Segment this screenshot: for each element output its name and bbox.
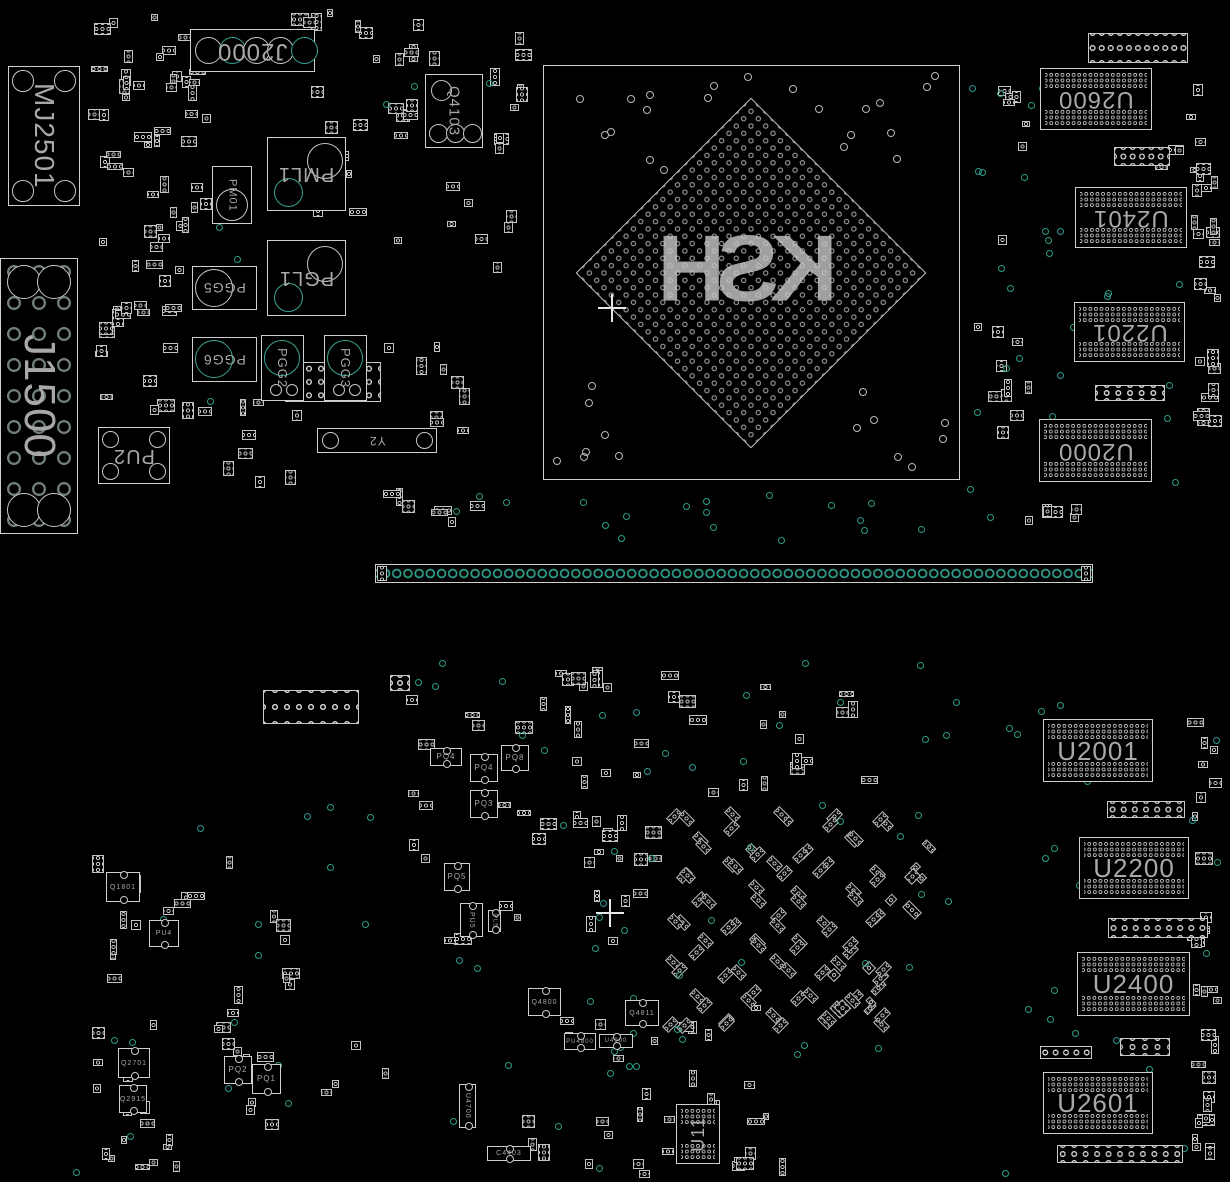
pin-circle <box>291 37 318 64</box>
component-label: PQ2 <box>228 1066 247 1074</box>
decorative-pad <box>131 920 141 930</box>
decorative-pad <box>123 168 134 177</box>
decorative-pad <box>504 222 513 233</box>
decorative-pad <box>158 234 170 243</box>
component-label: PQ4 <box>436 753 455 761</box>
pin-header <box>1057 1145 1183 1163</box>
component-label: U2601 <box>1057 1090 1139 1116</box>
component-pgg6[interactable]: PGG6 <box>192 337 257 382</box>
via <box>859 388 867 396</box>
component-label: PU2 <box>113 446 155 466</box>
decorative-pad <box>404 48 419 57</box>
via <box>1014 731 1021 738</box>
component-label: PGL1 <box>279 268 334 288</box>
via <box>127 1133 134 1140</box>
decorative-pad <box>223 461 234 476</box>
gpu-bga[interactable]: KSH <box>543 65 960 480</box>
decorative-pad <box>540 818 557 830</box>
component-u4900[interactable]: U4900 <box>599 1034 633 1048</box>
decorative-pad <box>1195 1118 1203 1128</box>
via <box>967 486 974 493</box>
decorative-pad <box>1195 852 1213 865</box>
component-label: C4403 <box>496 1150 522 1157</box>
decorative-pad <box>766 855 783 872</box>
via <box>643 106 651 114</box>
via <box>207 398 214 405</box>
via <box>941 419 949 427</box>
decorative-pad <box>137 309 150 316</box>
pin-circle <box>235 1055 243 1063</box>
via <box>111 1037 118 1044</box>
decorative-pad <box>429 51 440 66</box>
component-label: PGG5 <box>203 281 246 295</box>
via <box>683 503 690 510</box>
pin-circle <box>465 1122 473 1130</box>
via <box>738 959 745 966</box>
pin-header <box>1108 918 1208 938</box>
component-mj2501[interactable]: MJ2501 <box>8 66 80 206</box>
via <box>922 736 929 743</box>
decorative-pad <box>359 27 373 39</box>
component-u2000[interactable]: U2000 <box>1039 419 1152 482</box>
component-label: PQ8 <box>505 754 524 762</box>
component-label: Q2701 <box>121 1060 147 1067</box>
component-label: U2201 <box>1092 320 1168 344</box>
decorative-pad <box>122 94 130 101</box>
decorative-pad <box>409 839 419 851</box>
component-label: Q4103 <box>447 86 462 136</box>
decorative-pad <box>637 1107 643 1122</box>
decorative-pad <box>590 672 599 688</box>
component-label: PGG3 <box>339 348 352 388</box>
decorative-pad <box>581 775 588 789</box>
decorative-pad <box>154 135 160 147</box>
via <box>1189 817 1196 824</box>
pin-circle <box>454 885 462 893</box>
decorative-pad <box>383 490 401 498</box>
decorative-pad <box>124 50 133 63</box>
decorative-pad <box>723 820 740 837</box>
pin-circle <box>577 1044 585 1052</box>
component-u4700[interactable]: U4700 <box>459 1084 476 1128</box>
component-pq1[interactable]: PQ1 <box>252 1064 281 1094</box>
decorative-pad <box>265 1119 279 1130</box>
decorative-pad <box>240 399 246 416</box>
component-label: Y2 <box>369 435 386 447</box>
decorative-pad <box>1022 121 1030 127</box>
decorative-pad <box>744 1081 755 1089</box>
component-label: PQ3 <box>474 800 493 808</box>
component-label: PM01 <box>227 179 238 212</box>
via <box>601 431 609 439</box>
decorative-pad <box>159 275 171 287</box>
decorative-pad <box>311 86 324 98</box>
decorative-pad <box>133 81 145 90</box>
component-u2601[interactable]: U2601 <box>1043 1072 1153 1134</box>
via <box>1002 1170 1009 1177</box>
component-j2000[interactable]: J2000 <box>190 29 315 72</box>
via <box>1057 372 1064 379</box>
decorative-pad <box>134 132 152 142</box>
pin-circle <box>469 931 477 939</box>
component-pq5[interactable]: PQ5 <box>444 863 470 891</box>
decorative-pad <box>645 826 662 839</box>
decorative-pad <box>532 833 546 845</box>
via <box>618 535 625 542</box>
decorative-pad <box>633 1159 644 1169</box>
decorative-pad <box>1210 218 1217 235</box>
decorative-pad <box>1010 410 1024 421</box>
decorative-pad <box>1211 176 1218 189</box>
component-q2701[interactable]: Q2701 <box>118 1048 150 1078</box>
decorative-pad <box>226 856 233 869</box>
component-pgg3[interactable]: PGG3 <box>324 335 367 401</box>
decorative-pad <box>144 225 157 238</box>
decorative-pad <box>802 987 819 1004</box>
decorative-pad <box>718 1015 735 1032</box>
decorative-pad <box>495 143 504 154</box>
decorative-pad <box>448 517 456 527</box>
decorative-pad <box>377 566 387 581</box>
pin-circle <box>161 941 169 949</box>
via <box>676 972 683 979</box>
via <box>541 747 548 754</box>
decorative-pad <box>664 1116 675 1123</box>
via <box>383 101 390 108</box>
decorative-pad <box>238 448 253 459</box>
decorative-pad <box>1210 746 1218 754</box>
via <box>602 522 609 529</box>
pin-circle <box>264 1063 272 1071</box>
via <box>1164 415 1171 422</box>
decorative-pad <box>93 1084 101 1093</box>
component-pgg2[interactable]: PGG2 <box>261 335 304 401</box>
component-label: PML1 <box>278 164 334 184</box>
component-y2[interactable]: Y2 <box>317 428 437 453</box>
component-pq3[interactable]: PQ3 <box>470 790 498 818</box>
via <box>1045 237 1052 244</box>
component-pq2[interactable]: PQ2 <box>224 1056 252 1084</box>
pin-circle <box>481 753 489 761</box>
decorative-pad <box>1003 99 1015 106</box>
decorative-pad <box>96 345 107 357</box>
via <box>596 1165 603 1172</box>
via <box>875 1045 882 1052</box>
decorative-pad <box>779 1158 786 1176</box>
decorative-pad <box>163 907 174 915</box>
decorative-pad <box>246 1105 255 1115</box>
via <box>969 85 976 92</box>
decorative-pad <box>110 939 117 955</box>
component-pu5[interactable]: PU5 <box>460 903 483 937</box>
decorative-pad <box>93 1059 103 1066</box>
decorative-pad <box>795 734 804 744</box>
via <box>897 833 904 840</box>
via <box>580 453 588 461</box>
decorative-pad <box>608 937 618 945</box>
via <box>837 699 844 706</box>
component-label: PQ1 <box>257 1075 276 1083</box>
decorative-pad <box>174 899 191 908</box>
component-label: MJ2501 <box>30 83 58 189</box>
decorative-pad <box>1071 504 1082 515</box>
decorative-pad <box>325 121 338 134</box>
decorative-pad <box>99 109 109 121</box>
via <box>943 732 950 739</box>
component-pm01[interactable]: PM01 <box>212 166 252 224</box>
pin-header <box>1120 1038 1170 1056</box>
component-pgl1[interactable]: PGL1 <box>267 240 346 316</box>
decorative-pad <box>166 83 177 92</box>
component-pl5[interactable]: PL5 <box>488 910 501 932</box>
decorative-pad <box>848 701 858 718</box>
component-label: PU4 <box>156 930 173 937</box>
decorative-pad <box>1209 239 1220 246</box>
decorative-pad <box>998 235 1007 245</box>
via <box>411 83 418 90</box>
decorative-pad <box>1193 984 1200 996</box>
decorative-pad <box>94 23 111 35</box>
decorative-pad <box>604 1131 613 1139</box>
component-pq4[interactable]: PQ4 <box>470 754 498 782</box>
via <box>327 804 334 811</box>
decorative-pad <box>639 1170 650 1178</box>
component-q4811[interactable]: Q4811 <box>625 1000 659 1026</box>
via <box>456 957 463 964</box>
decorative-pad <box>1196 163 1211 175</box>
decorative-pad <box>596 1117 609 1126</box>
decorative-pad <box>394 132 408 139</box>
decorative-pad <box>92 1027 105 1039</box>
component-q4103[interactable]: Q4103 <box>425 74 483 148</box>
via <box>906 964 913 971</box>
decorative-pad <box>470 501 485 511</box>
via <box>1057 228 1064 235</box>
via <box>998 265 1005 272</box>
decorative-pad <box>493 262 502 273</box>
decorative-pad <box>388 103 404 114</box>
via <box>474 965 481 972</box>
decorative-pad <box>1202 1071 1216 1084</box>
decorative-pad <box>1025 516 1033 525</box>
decorative-pad <box>904 868 921 885</box>
component-q4800[interactable]: Q4800 <box>528 988 561 1016</box>
decorative-pad <box>997 426 1009 439</box>
decorative-pad <box>739 779 748 791</box>
decorative-pad <box>814 964 831 981</box>
via <box>611 848 618 855</box>
via <box>1042 855 1049 862</box>
decorative-pad <box>516 87 528 102</box>
via <box>304 813 311 820</box>
via <box>828 502 835 509</box>
via <box>740 758 747 765</box>
via <box>415 679 422 686</box>
decorative-pad <box>679 695 696 708</box>
decorative-pad <box>634 853 648 866</box>
decorative-pad <box>440 364 447 375</box>
component-pq8[interactable]: PQ8 <box>501 745 529 771</box>
via <box>231 1019 238 1026</box>
via <box>1016 355 1023 362</box>
pin-circle <box>639 999 647 1007</box>
decorative-pad <box>592 816 601 827</box>
via <box>1051 987 1058 994</box>
decorative-pad <box>163 343 178 353</box>
component-label: U2400 <box>1093 971 1175 997</box>
via <box>918 526 925 533</box>
component-label: U4700 <box>464 1093 471 1119</box>
component-u2001[interactable]: U2001 <box>1043 719 1153 782</box>
via <box>432 683 439 690</box>
pin-circle <box>512 765 520 773</box>
via <box>587 998 594 1005</box>
via <box>73 1169 80 1176</box>
via <box>1176 281 1183 288</box>
component-pu2[interactable]: PU2 <box>98 427 170 484</box>
decorative-pad <box>642 1088 651 1100</box>
pin-circle <box>481 812 489 820</box>
component-u2400[interactable]: U2400 <box>1077 952 1190 1016</box>
decorative-pad <box>191 202 198 213</box>
decorative-pad <box>162 46 176 55</box>
decorative-pad <box>447 221 456 227</box>
via <box>1042 228 1049 235</box>
via <box>1046 250 1053 257</box>
decorative-pad <box>185 110 198 118</box>
via <box>837 818 844 825</box>
decorative-pad <box>457 427 469 434</box>
decorative-pad <box>750 892 767 909</box>
decorative-pad <box>421 854 430 863</box>
edge-connector-slot[interactable] <box>375 564 1093 583</box>
decorative-pad <box>1043 506 1052 517</box>
decorative-pad <box>1207 349 1219 367</box>
pin-circle <box>454 862 462 870</box>
via <box>893 155 901 163</box>
component-label: PL5 <box>492 914 498 928</box>
decorative-pad <box>1202 1114 1210 1123</box>
component-j1500[interactable]: J1500 <box>0 258 78 534</box>
decorative-pad <box>992 326 1004 338</box>
component-q2915[interactable]: Q2915 <box>119 1085 147 1113</box>
decorative-pad <box>406 695 418 705</box>
via <box>644 768 651 775</box>
component-pml1[interactable]: PML1 <box>267 137 346 211</box>
decorative-pad <box>276 919 291 932</box>
decorative-pad <box>234 986 243 1004</box>
decorative-pad <box>351 1041 361 1050</box>
decorative-pad <box>349 208 367 216</box>
decorative-pad <box>595 1019 606 1030</box>
decorative-pad <box>472 720 485 731</box>
component-u2401[interactable]: U2401 <box>1075 187 1187 248</box>
via <box>679 1036 686 1043</box>
via <box>607 128 615 136</box>
decorative-pad <box>1194 278 1207 290</box>
via <box>225 1085 232 1092</box>
decorative-pad <box>633 772 641 778</box>
via <box>503 499 510 506</box>
pin-circle <box>120 871 128 879</box>
decorative-pad <box>146 260 163 269</box>
decorative-pad <box>292 410 302 421</box>
decorative-pad <box>353 119 368 131</box>
decorative-pad <box>514 914 521 921</box>
via <box>1213 737 1220 744</box>
crosshair-marker <box>598 294 626 322</box>
component-label: U11 <box>689 1117 707 1152</box>
via <box>216 224 223 231</box>
decorative-pad <box>616 855 623 862</box>
decorative-pad <box>150 1020 157 1030</box>
component-u2600[interactable]: U2600 <box>1040 68 1152 130</box>
decorative-pad <box>1012 338 1023 346</box>
board-canvas[interactable]: KSHMJ2501J1500J2000Q4103PM01PML1PGL1PGG5… <box>0 0 1230 1182</box>
pin-header <box>1114 147 1170 166</box>
component-label: PQ4 <box>474 764 493 772</box>
component-pu4800[interactable]: PU4800 <box>564 1033 596 1050</box>
component-pgg5[interactable]: PGG5 <box>192 266 257 310</box>
component-u2200[interactable]: U2200 <box>1079 837 1189 899</box>
decorative-pad <box>510 104 519 111</box>
chip-logo: KSH <box>666 214 837 322</box>
via <box>234 256 241 263</box>
decorative-pad <box>165 304 182 312</box>
pin-circle <box>639 1020 647 1028</box>
component-label: Q1801 <box>110 884 136 891</box>
decorative-pad <box>1209 778 1222 788</box>
pin-circle <box>7 493 41 527</box>
via <box>592 945 599 952</box>
decorative-pad <box>99 322 113 335</box>
decorative-pad <box>708 788 719 797</box>
via <box>255 952 262 959</box>
decorative-pad <box>283 974 290 983</box>
decorative-pad <box>464 199 473 207</box>
pin-circle <box>416 432 433 449</box>
decorative-pad <box>451 376 464 389</box>
component-label: PU5 <box>468 912 475 929</box>
decorative-pad <box>974 323 982 331</box>
via <box>450 1118 457 1125</box>
decorative-pad <box>847 830 864 847</box>
component-c4403[interactable]: C4403 <box>487 1146 531 1161</box>
decorative-pad <box>303 17 316 28</box>
component-q1801[interactable]: Q1801 <box>106 872 140 902</box>
decorative-pad <box>603 683 612 692</box>
decorative-pad <box>182 402 194 419</box>
decorative-pad <box>695 838 712 855</box>
decorative-pad <box>1081 566 1091 581</box>
decorative-pad <box>166 1134 173 1146</box>
component-u11[interactable]: U11 <box>676 1104 720 1164</box>
component-pq4[interactable]: PQ4 <box>430 748 462 766</box>
decorative-pad <box>1193 84 1203 96</box>
decorative-pad <box>151 14 158 21</box>
decorative-pad <box>594 849 604 855</box>
via <box>633 709 640 716</box>
decorative-pad <box>617 815 627 831</box>
decorative-pad <box>285 470 296 485</box>
decorative-pad <box>1186 114 1196 120</box>
pin-circle <box>131 1047 139 1055</box>
decorative-pad <box>475 234 488 244</box>
component-u2201[interactable]: U2201 <box>1074 302 1185 362</box>
decorative-pad <box>839 691 854 697</box>
component-pu4[interactable]: PU4 <box>149 920 179 947</box>
decorative-pad <box>538 1144 550 1161</box>
